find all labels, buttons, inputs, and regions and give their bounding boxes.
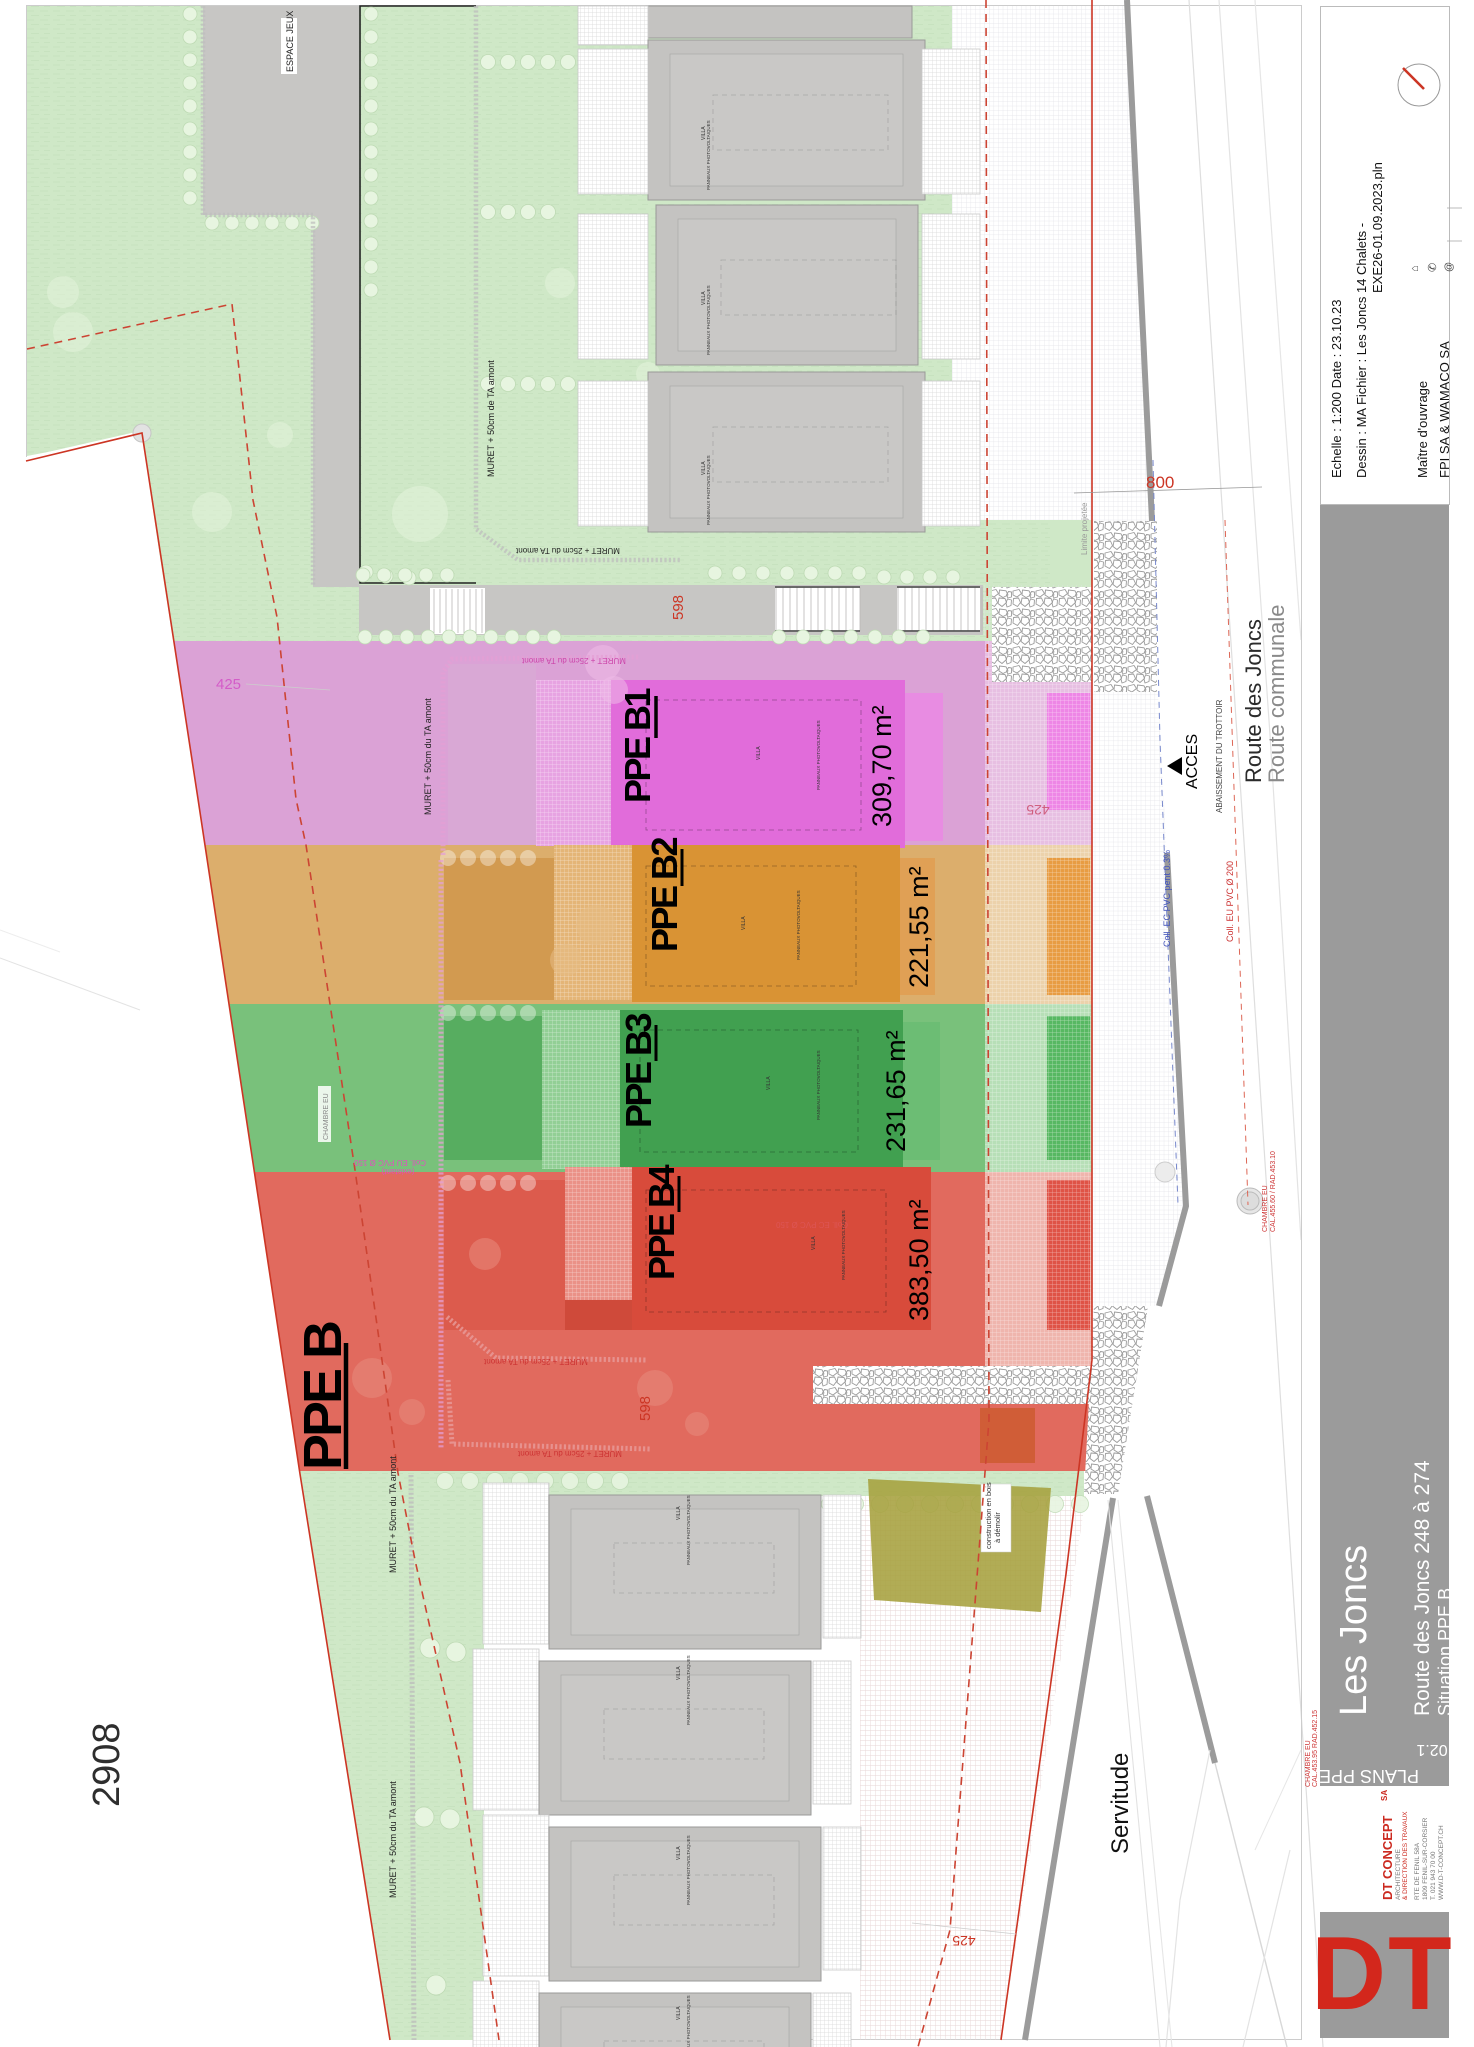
svg-text:PANNEAUX PHOTOVOLTAIQUES: PANNEAUX PHOTOVOLTAIQUES	[706, 120, 711, 190]
svg-text:PLANS PPE: PLANS PPE	[1319, 1766, 1419, 1786]
svg-text:Les Joncs: Les Joncs	[1333, 1545, 1375, 1716]
svg-text:ESPACE JEUX: ESPACE JEUX	[285, 11, 295, 72]
svg-text:231,65 m²: 231,65 m²	[881, 1030, 911, 1152]
svg-text:PANNEAUX PHOTOVOLTAIQUES: PANNEAUX PHOTOVOLTAIQUES	[686, 1495, 691, 1565]
svg-text:Coll. EC PVC Ø 150: Coll. EC PVC Ø 150	[775, 1220, 848, 1229]
svg-text:& DIRECTION DES TRAVAUX: & DIRECTION DES TRAVAUX	[1402, 1811, 1409, 1900]
svg-text:ABAISSEMENT DU TROTTOIR: ABAISSEMENT DU TROTTOIR	[1215, 699, 1224, 813]
svg-text:598: 598	[670, 595, 687, 620]
svg-text:Coll. EU PVC Ø 200: Coll. EU PVC Ø 200	[1225, 861, 1235, 942]
svg-text:Dessin : MA Fichi: Dessin : MA Fichier : Les Joncs 14 Chale…	[1354, 223, 1369, 478]
svg-text:425: 425	[952, 1933, 976, 1949]
svg-text:PANNEAUX PHOTOVOLTAIQUES: PANNEAUX PHOTOVOLTAIQUES	[686, 1835, 691, 1905]
svg-text:CHAMBRE EU: CHAMBRE EU	[323, 1093, 330, 1140]
svg-text:PANNEAUX PHOTOVOLTAIQUES: PANNEAUX PHOTOVOLTAIQUES	[816, 720, 821, 790]
svg-text:CAL.453.95 RAD.452.15: CAL.453.95 RAD.452.15	[1312, 1710, 1319, 1787]
svg-text:Situation PPE B: Situation PPE B	[1435, 1588, 1455, 1716]
svg-text:@: @	[1444, 262, 1455, 272]
svg-text:Servitude: Servitude	[1107, 1753, 1134, 1854]
svg-text:2908: 2908	[86, 1722, 128, 1807]
svg-text:MURET + 50cm du TA amont: MURET + 50cm du TA amont	[423, 698, 433, 815]
svg-text:Limite projetée: Limite projetée	[1080, 502, 1089, 555]
svg-text:à démolir: à démolir	[993, 1512, 1002, 1543]
svg-text:221,55 m²: 221,55 m²	[904, 866, 934, 988]
svg-text:Route communale: Route communale	[1264, 604, 1289, 783]
svg-text:construction en bois: construction en bois	[984, 1482, 993, 1549]
svg-text:MURET + 50cm du TA amont: MURET + 50cm du TA amont	[388, 1456, 398, 1573]
svg-text:PANNEAUX PHOTOVOLTAIQUES: PANNEAUX PHOTOVOLTAIQUES	[816, 1050, 821, 1120]
svg-text:Route des Joncs: Route des Joncs	[1241, 619, 1266, 783]
svg-text:MURET + 50cm du TA amont: MURET + 50cm du TA amont	[388, 1781, 398, 1898]
svg-text:Maître d'ouvrage: Maître d'ouvrage	[1415, 381, 1430, 478]
svg-text:VILLA: VILLA	[741, 916, 747, 930]
svg-text:PANNEAUX PHOTOVOLTAIQUES: PANNEAUX PHOTOVOLTAIQUES	[706, 455, 711, 525]
svg-text:PPE B3: PPE B3	[618, 1013, 659, 1128]
svg-text:(existant): (existant)	[381, 1167, 414, 1176]
svg-text:VILLA: VILLA	[676, 1506, 682, 1520]
svg-text:309,70 m²: 309,70 m²	[867, 705, 897, 827]
svg-text:PPE B4: PPE B4	[641, 1164, 682, 1280]
svg-text:MURET + 50cm de TA amont: MURET + 50cm de TA amont	[486, 360, 496, 477]
svg-text:CHAMBRE EU: CHAMBRE EU	[1305, 1740, 1312, 1787]
svg-text:800: 800	[1146, 473, 1174, 492]
svg-text:EXE26-01.09.2023.pln: EXE26-01.09.2023.pln	[1370, 162, 1385, 293]
svg-text:MURET + 25cm du TA amont: MURET + 25cm du TA amont	[515, 546, 620, 555]
svg-text:PPE B1: PPE B1	[617, 687, 658, 803]
svg-text:VILLA: VILLA	[811, 1236, 817, 1250]
svg-text:RTE DE FENIL 58A: RTE DE FENIL 58A	[1414, 1842, 1421, 1900]
svg-text:DT: DT	[1311, 1916, 1454, 2032]
svg-text:WWW.D-T-CONCEPT.CH: WWW.D-T-CONCEPT.CH	[1438, 1825, 1445, 1900]
svg-text:DT CONCEPT: DT CONCEPT	[1380, 1815, 1395, 1900]
svg-text:383,50 m²: 383,50 m²	[904, 1199, 934, 1321]
svg-text:PPE B2: PPE B2	[644, 837, 685, 952]
svg-text:CHAMBRE EU: CHAMBRE EU	[1262, 1185, 1269, 1232]
svg-text:MURET + 25cm du TA amont: MURET + 25cm du TA amont	[521, 656, 626, 665]
svg-text:425: 425	[1026, 802, 1050, 818]
svg-text:CAL.455.60 / RAD.453.10: CAL.455.60 / RAD.453.10	[1270, 1151, 1277, 1232]
svg-text:PANNEAUX PHOTOVOLTAIQUES: PANNEAUX PHOTOVOLTAIQUES	[686, 1995, 691, 2047]
svg-text:MURET + 25cm du TA amont: MURET + 25cm du TA amont	[483, 1357, 588, 1366]
svg-text:SA: SA	[1380, 1790, 1389, 1801]
svg-text:VILLA: VILLA	[766, 1076, 772, 1090]
svg-text:PANNEAUX PHOTOVOLTAIQUES: PANNEAUX PHOTOVOLTAIQUES	[841, 1210, 846, 1280]
svg-text:PANNEAUX PHOTOVOLTAIQUES: PANNEAUX PHOTOVOLTAIQUES	[686, 1655, 691, 1725]
svg-text:VILLA: VILLA	[676, 2006, 682, 2020]
svg-text:ACCES: ACCES	[1184, 734, 1201, 789]
svg-text:Route des Joncs 248 à 274: Route des Joncs 248 à 274	[1411, 1460, 1434, 1716]
svg-text:VILLA: VILLA	[676, 1846, 682, 1860]
svg-text:02.1: 02.1	[1416, 1741, 1447, 1758]
svg-text:MURET + 25cm du TA amont: MURET + 25cm du TA amont	[517, 1449, 622, 1458]
svg-text:Coll. EU PVC Ø 150: Coll. EU PVC Ø 150	[353, 1158, 426, 1167]
svg-text:VILLA: VILLA	[676, 1666, 682, 1680]
svg-text:1809 FENIL-SUR-CORSIER: 1809 FENIL-SUR-CORSIER	[1422, 1817, 1429, 1900]
svg-text:PANNEAUX PHOTOVOLTAIQUES: PANNEAUX PHOTOVOLTAIQUES	[796, 890, 801, 960]
svg-text:598: 598	[637, 1396, 654, 1421]
svg-text:VILLA: VILLA	[756, 746, 762, 760]
svg-text:ARCHITECTURE: ARCHITECTURE	[1395, 1848, 1402, 1900]
svg-text:✆: ✆	[1427, 263, 1439, 272]
svg-text:Coll. EC PVC pent 0.3%: Coll. EC PVC pent 0.3%	[1162, 850, 1172, 947]
svg-text:PANNEAUX PHOTOVOLTAIQUES: PANNEAUX PHOTOVOLTAIQUES	[706, 285, 711, 355]
svg-text:425: 425	[216, 676, 241, 693]
svg-text:FPI SA & WAMACO SA: FPI SA & WAMACO SA	[1437, 341, 1452, 478]
svg-text:T. 021 943 70 00: T. 021 943 70 00	[1430, 1851, 1437, 1900]
svg-text:⌂: ⌂	[1409, 265, 1421, 272]
svg-text:Echelle : 1:200 Date: Echelle : 1:200 Date : 23.10.23	[1329, 299, 1344, 478]
